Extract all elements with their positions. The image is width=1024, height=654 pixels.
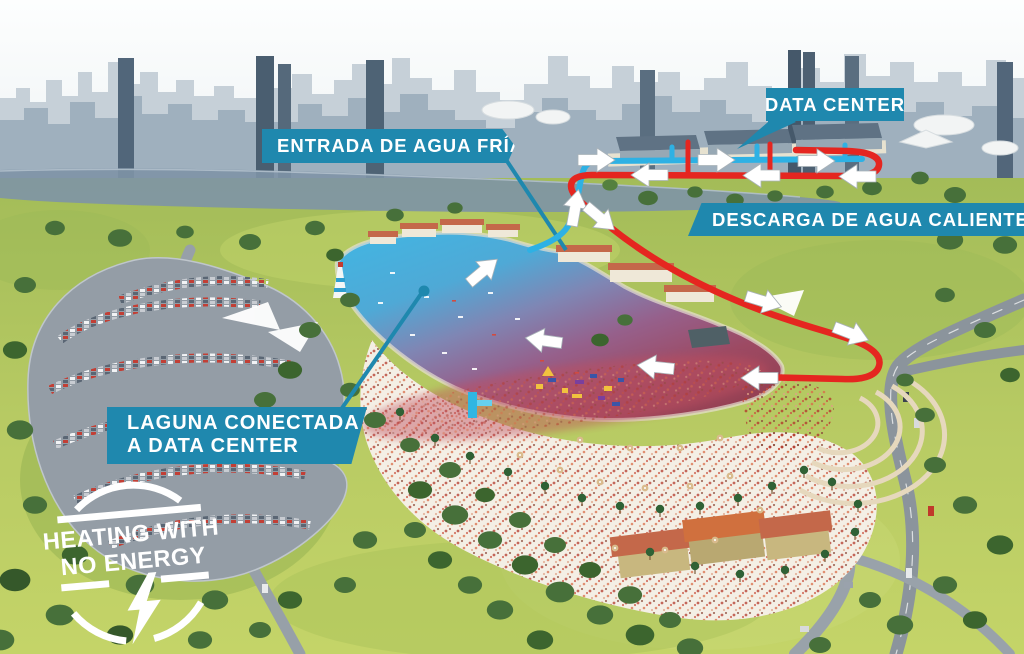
lagoon-leader-dot bbox=[419, 286, 430, 297]
infographic-canvas: HEATING WITH NO ENERGY ENTRADA DE AGUA F… bbox=[0, 0, 1024, 654]
label-hot-water-discharge: DESCARGA DE AGUA CALIENTE bbox=[688, 203, 1024, 236]
label-cold-water-inlet-text: ENTRADA DE AGUA FRÍA bbox=[277, 135, 524, 157]
label-lagoon-line1: LAGUNA CONECTADA bbox=[127, 412, 367, 435]
label-data-center: DATA CENTER bbox=[766, 88, 904, 121]
label-cold-water-inlet: ENTRADA DE AGUA FRÍA bbox=[262, 129, 515, 163]
label-lagoon-connected: LAGUNA CONECTADA A DATA CENTER bbox=[107, 407, 367, 464]
label-data-center-text: DATA CENTER bbox=[765, 94, 905, 116]
label-lagoon-line2: A DATA CENTER bbox=[127, 435, 367, 458]
label-hot-water-discharge-text: DESCARGA DE AGUA CALIENTE bbox=[712, 209, 1024, 231]
